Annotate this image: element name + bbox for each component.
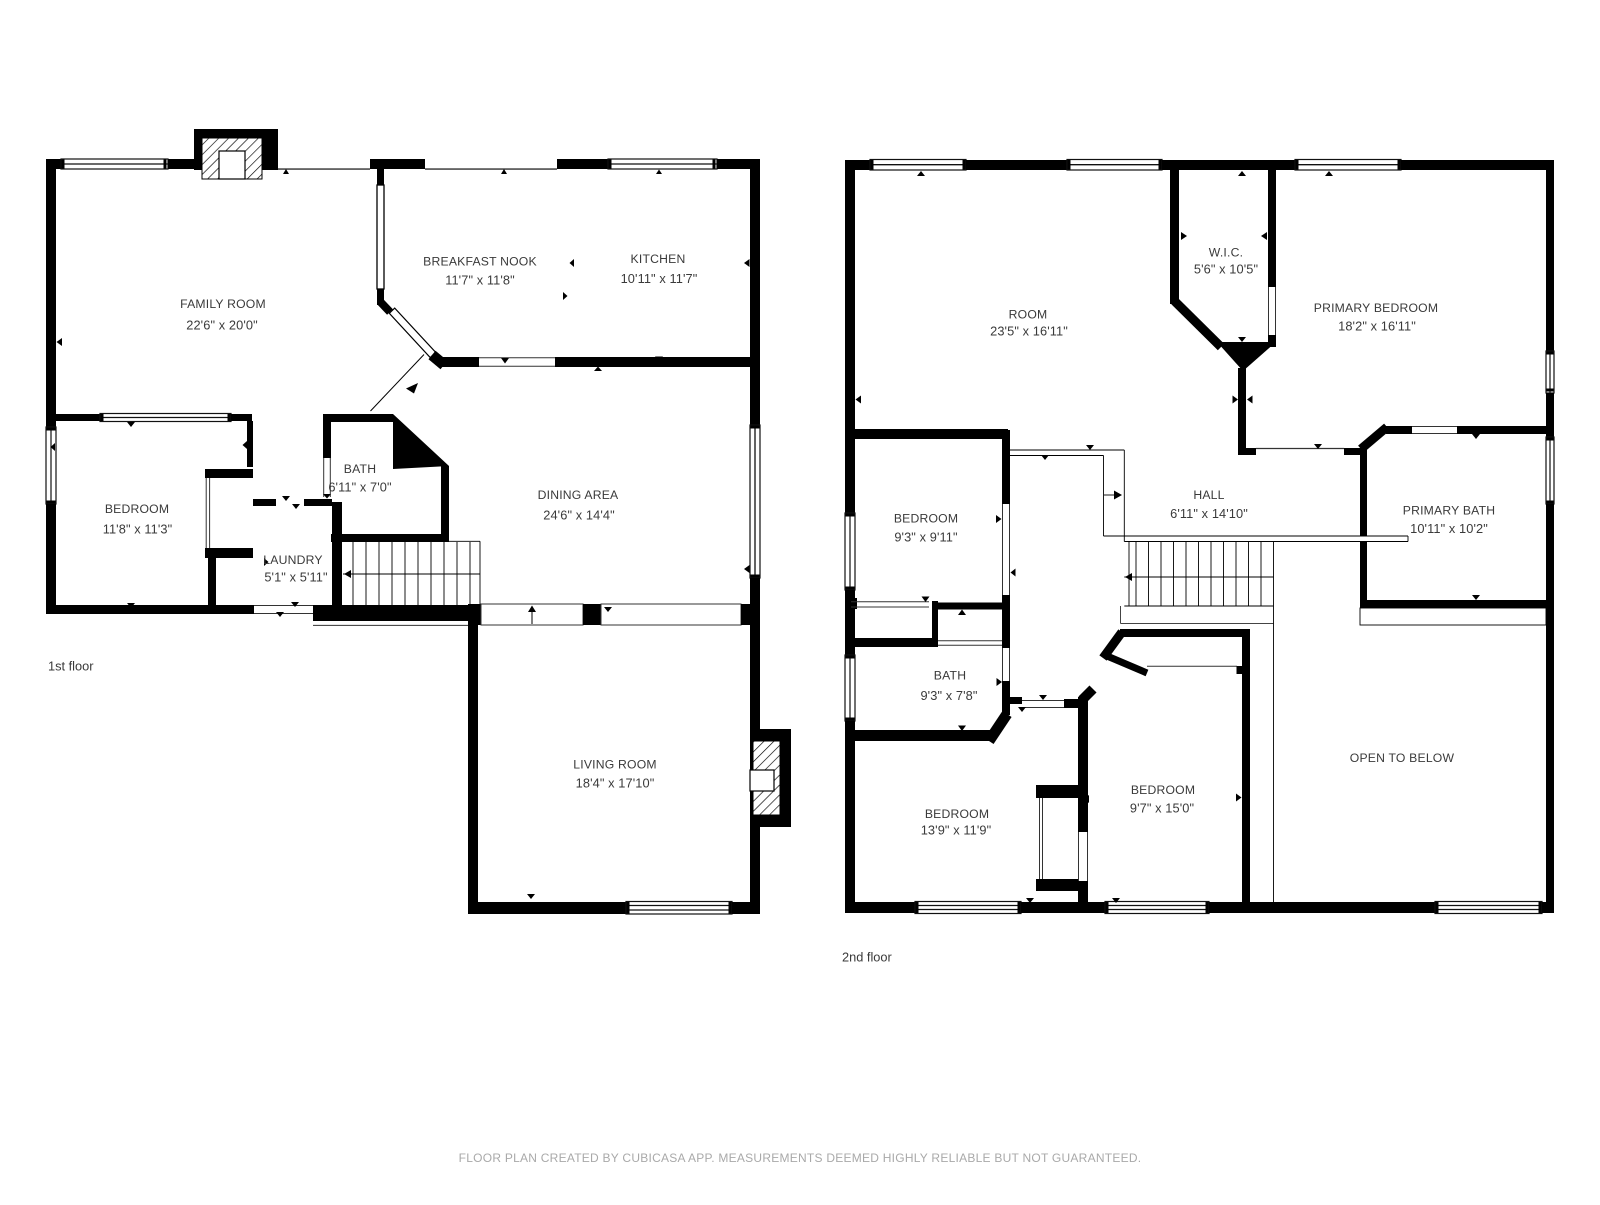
svg-text:BATH: BATH: [934, 669, 966, 683]
svg-text:22'6" x 20'0": 22'6" x 20'0": [186, 318, 257, 333]
svg-text:BREAKFAST NOOK: BREAKFAST NOOK: [423, 255, 537, 269]
svg-text:BATH: BATH: [344, 462, 376, 476]
svg-text:KITCHEN: KITCHEN: [631, 252, 686, 266]
svg-text:9'7" x 15'0": 9'7" x 15'0": [1130, 801, 1194, 816]
svg-text:HALL: HALL: [1193, 488, 1224, 502]
svg-text:LAUNDRY: LAUNDRY: [263, 553, 322, 567]
svg-text:10'11" x 10'2": 10'11" x 10'2": [1410, 521, 1488, 536]
svg-text:ROOM: ROOM: [1009, 308, 1048, 322]
svg-text:9'3" x 9'11": 9'3" x 9'11": [894, 530, 957, 545]
svg-text:W.I.C.: W.I.C.: [1209, 246, 1243, 260]
svg-text:BEDROOM: BEDROOM: [1131, 783, 1195, 797]
svg-text:13'9" x 11'9": 13'9" x 11'9": [921, 823, 992, 838]
svg-text:PRIMARY BEDROOM: PRIMARY BEDROOM: [1314, 301, 1438, 315]
svg-text:LIVING ROOM: LIVING ROOM: [573, 758, 656, 772]
svg-text:FLOOR PLAN CREATED BY CUBICASA: FLOOR PLAN CREATED BY CUBICASA APP. MEAS…: [459, 1151, 1142, 1165]
svg-text:OPEN TO BELOW: OPEN TO BELOW: [1350, 751, 1455, 765]
svg-text:2nd floor: 2nd floor: [842, 950, 893, 965]
svg-text:18'4" x 17'10": 18'4" x 17'10": [576, 776, 655, 791]
svg-text:FAMILY ROOM: FAMILY ROOM: [180, 297, 266, 311]
svg-text:6'11" x 14'10": 6'11" x 14'10": [1170, 506, 1248, 521]
svg-text:DINING AREA: DINING AREA: [538, 488, 619, 502]
svg-text:5'6" x 10'5": 5'6" x 10'5": [1194, 262, 1258, 277]
svg-text:10'11" x 11'7": 10'11" x 11'7": [621, 271, 698, 286]
svg-text:BEDROOM: BEDROOM: [925, 807, 989, 821]
svg-text:11'8" x 11'3": 11'8" x 11'3": [103, 522, 173, 537]
svg-text:23'5" x 16'11": 23'5" x 16'11": [990, 324, 1068, 339]
svg-text:5'1" x 5'11": 5'1" x 5'11": [264, 570, 327, 585]
svg-text:6'11" x 7'0": 6'11" x 7'0": [328, 480, 391, 495]
svg-text:BEDROOM: BEDROOM: [894, 512, 958, 526]
svg-text:PRIMARY BATH: PRIMARY BATH: [1403, 504, 1495, 518]
svg-text:9'3" x 7'8": 9'3" x 7'8": [920, 688, 977, 703]
svg-text:18'2" x 16'11": 18'2" x 16'11": [1338, 319, 1416, 334]
svg-text:1st floor: 1st floor: [48, 659, 94, 674]
svg-text:24'6" x 14'4": 24'6" x 14'4": [543, 508, 614, 523]
svg-text:BEDROOM: BEDROOM: [105, 502, 169, 516]
svg-text:11'7" x 11'8": 11'7" x 11'8": [445, 273, 515, 288]
